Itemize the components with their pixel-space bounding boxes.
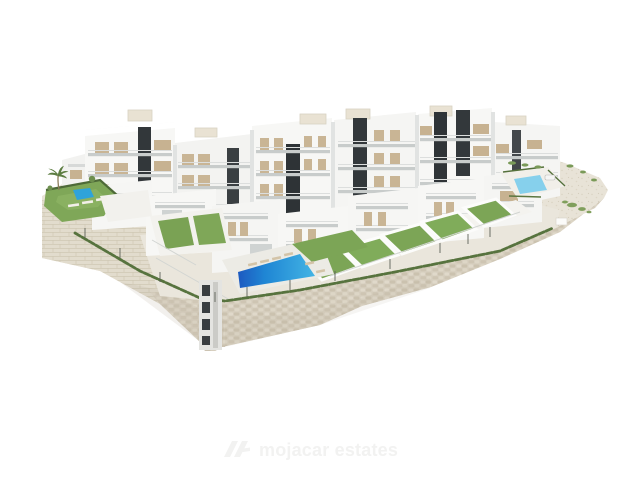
- svg-text:mojacar estates: mojacar estates: [259, 440, 398, 460]
